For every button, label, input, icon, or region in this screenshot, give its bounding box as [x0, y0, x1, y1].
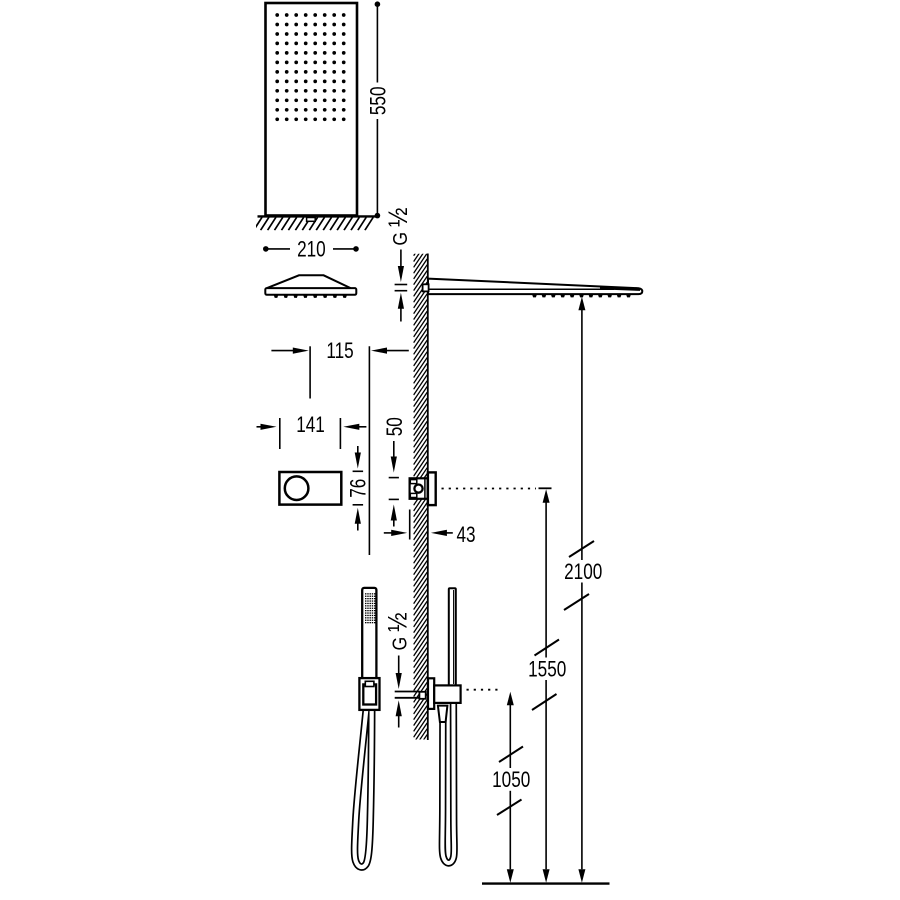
- svg-text:2100: 2100: [564, 560, 602, 585]
- svg-text:550: 550: [366, 86, 391, 115]
- svg-text:1050: 1050: [492, 768, 530, 793]
- svg-text:50: 50: [383, 417, 408, 436]
- svg-text:G ½: G ½: [384, 207, 414, 245]
- svg-text:43: 43: [456, 523, 475, 548]
- svg-text:76: 76: [347, 479, 372, 498]
- svg-text:G ½: G ½: [383, 612, 413, 650]
- svg-text:141: 141: [296, 413, 325, 438]
- svg-text:210: 210: [297, 238, 326, 263]
- svg-text:115: 115: [326, 339, 353, 364]
- svg-text:1550: 1550: [528, 658, 566, 683]
